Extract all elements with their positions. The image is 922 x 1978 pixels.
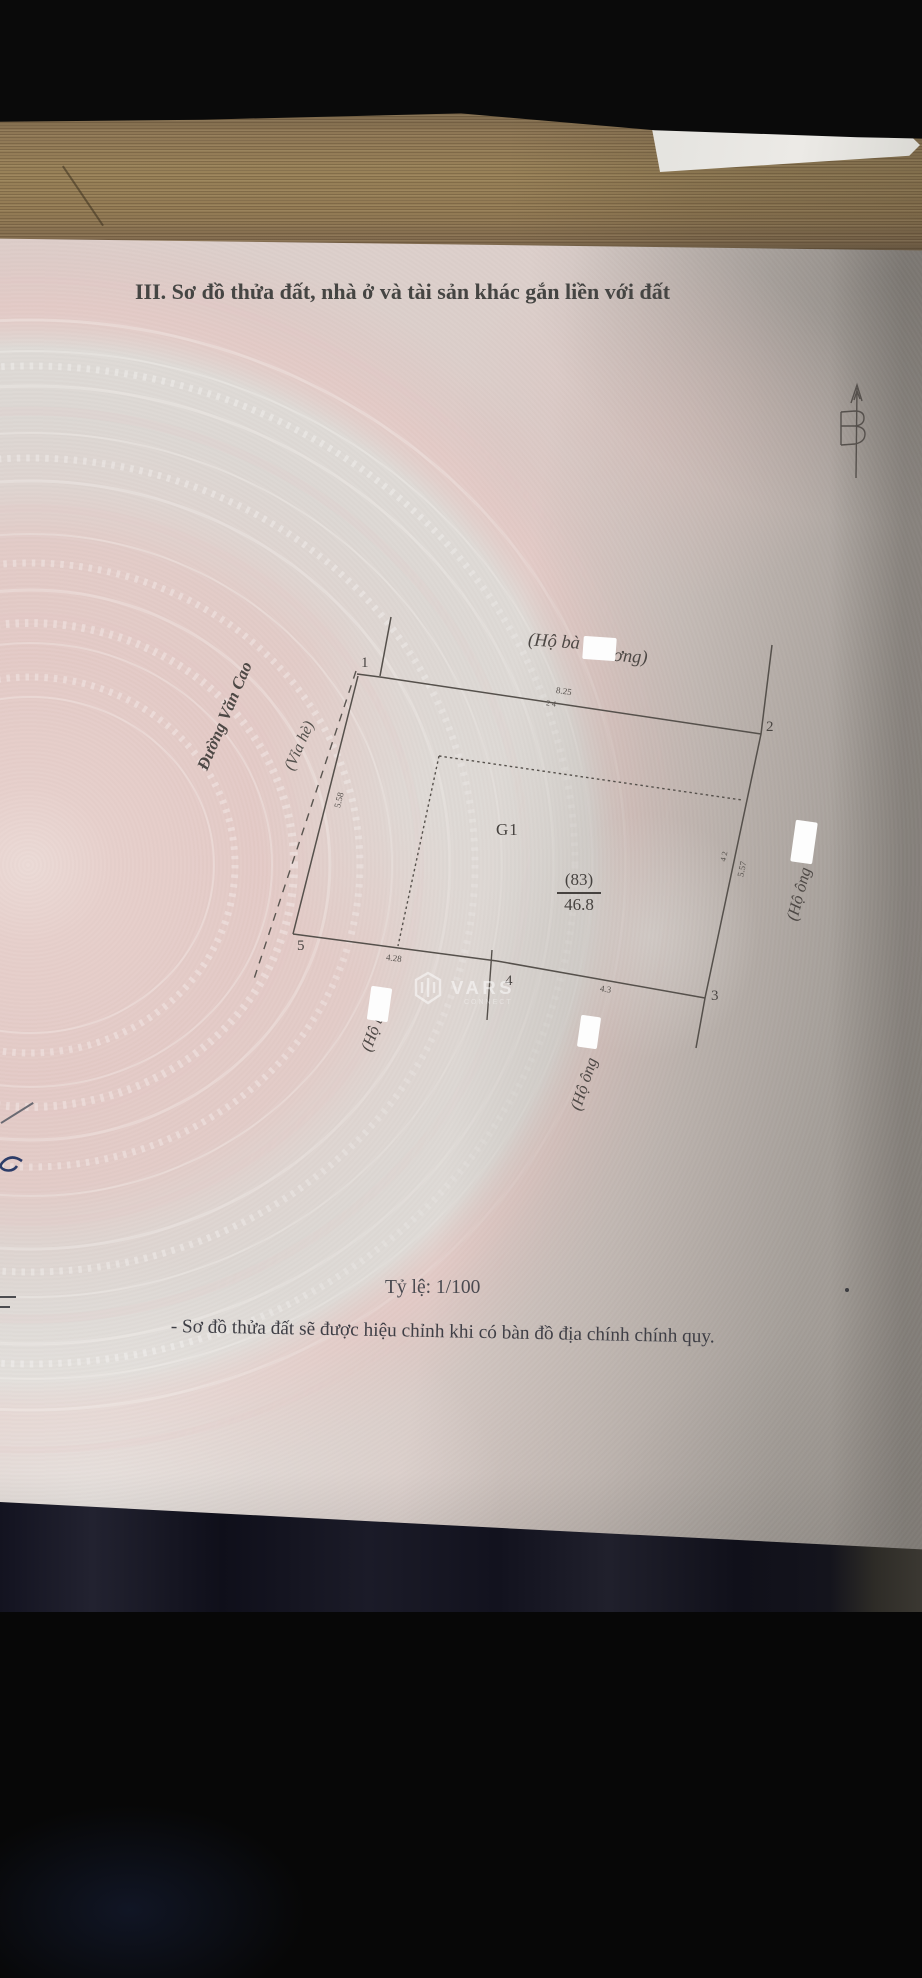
svg-text:CONNECT: CONNECT: [464, 999, 513, 1006]
svg-text:VARS: VARS: [451, 977, 515, 998]
